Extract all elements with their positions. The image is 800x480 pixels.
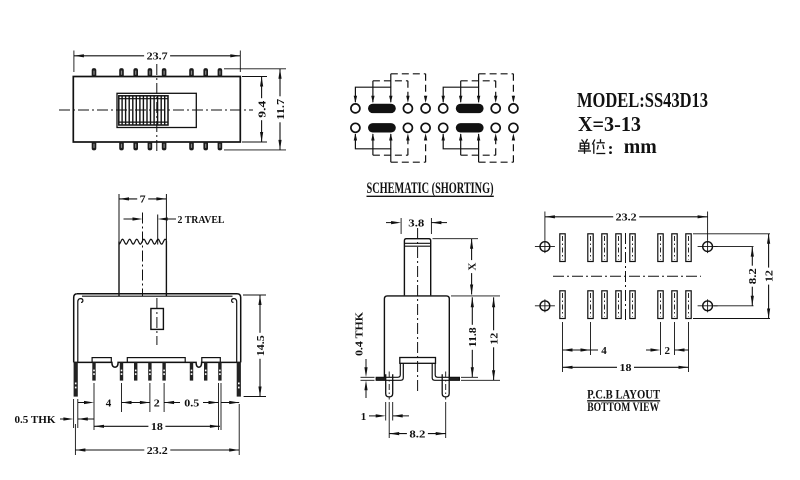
svg-text:4: 4 bbox=[106, 397, 112, 409]
svg-text:7: 7 bbox=[140, 194, 147, 206]
svg-text:14.5: 14.5 bbox=[255, 335, 267, 357]
svg-text:2: 2 bbox=[154, 397, 161, 409]
svg-text:9.4: 9.4 bbox=[256, 100, 268, 118]
svg-text:8.2: 8.2 bbox=[747, 268, 759, 285]
svg-text:mm: mm bbox=[624, 136, 657, 158]
svg-text:12: 12 bbox=[488, 332, 500, 345]
svg-text:11.7: 11.7 bbox=[275, 98, 287, 120]
svg-text:X=3-13: X=3-13 bbox=[578, 112, 641, 136]
svg-text:23.7: 23.7 bbox=[147, 51, 169, 63]
svg-text:SCHEMATIC (SHORTING): SCHEMATIC (SHORTING) bbox=[367, 180, 494, 197]
svg-text:1: 1 bbox=[361, 411, 367, 423]
svg-text:23.2: 23.2 bbox=[616, 212, 638, 224]
svg-text:BOTTOM VIEW: BOTTOM VIEW bbox=[587, 400, 659, 414]
svg-text:18: 18 bbox=[620, 362, 633, 374]
svg-text:MODEL:SS43D13: MODEL:SS43D13 bbox=[577, 88, 708, 112]
svg-text:8.2: 8.2 bbox=[409, 428, 426, 440]
svg-text:23.2: 23.2 bbox=[147, 445, 169, 457]
svg-text:X: X bbox=[466, 263, 478, 271]
svg-text:2 TRAVEL: 2 TRAVEL bbox=[178, 214, 225, 226]
svg-text:2: 2 bbox=[665, 345, 671, 357]
svg-text:12: 12 bbox=[763, 270, 775, 283]
svg-text:3.8: 3.8 bbox=[408, 217, 425, 229]
svg-text:4: 4 bbox=[601, 345, 607, 357]
svg-text:0.5: 0.5 bbox=[184, 397, 200, 409]
svg-text:0.5 THK: 0.5 THK bbox=[15, 414, 56, 426]
svg-text:18: 18 bbox=[151, 421, 164, 433]
svg-text:11.8: 11.8 bbox=[467, 327, 479, 348]
svg-text:0.4 THK: 0.4 THK bbox=[354, 312, 366, 356]
